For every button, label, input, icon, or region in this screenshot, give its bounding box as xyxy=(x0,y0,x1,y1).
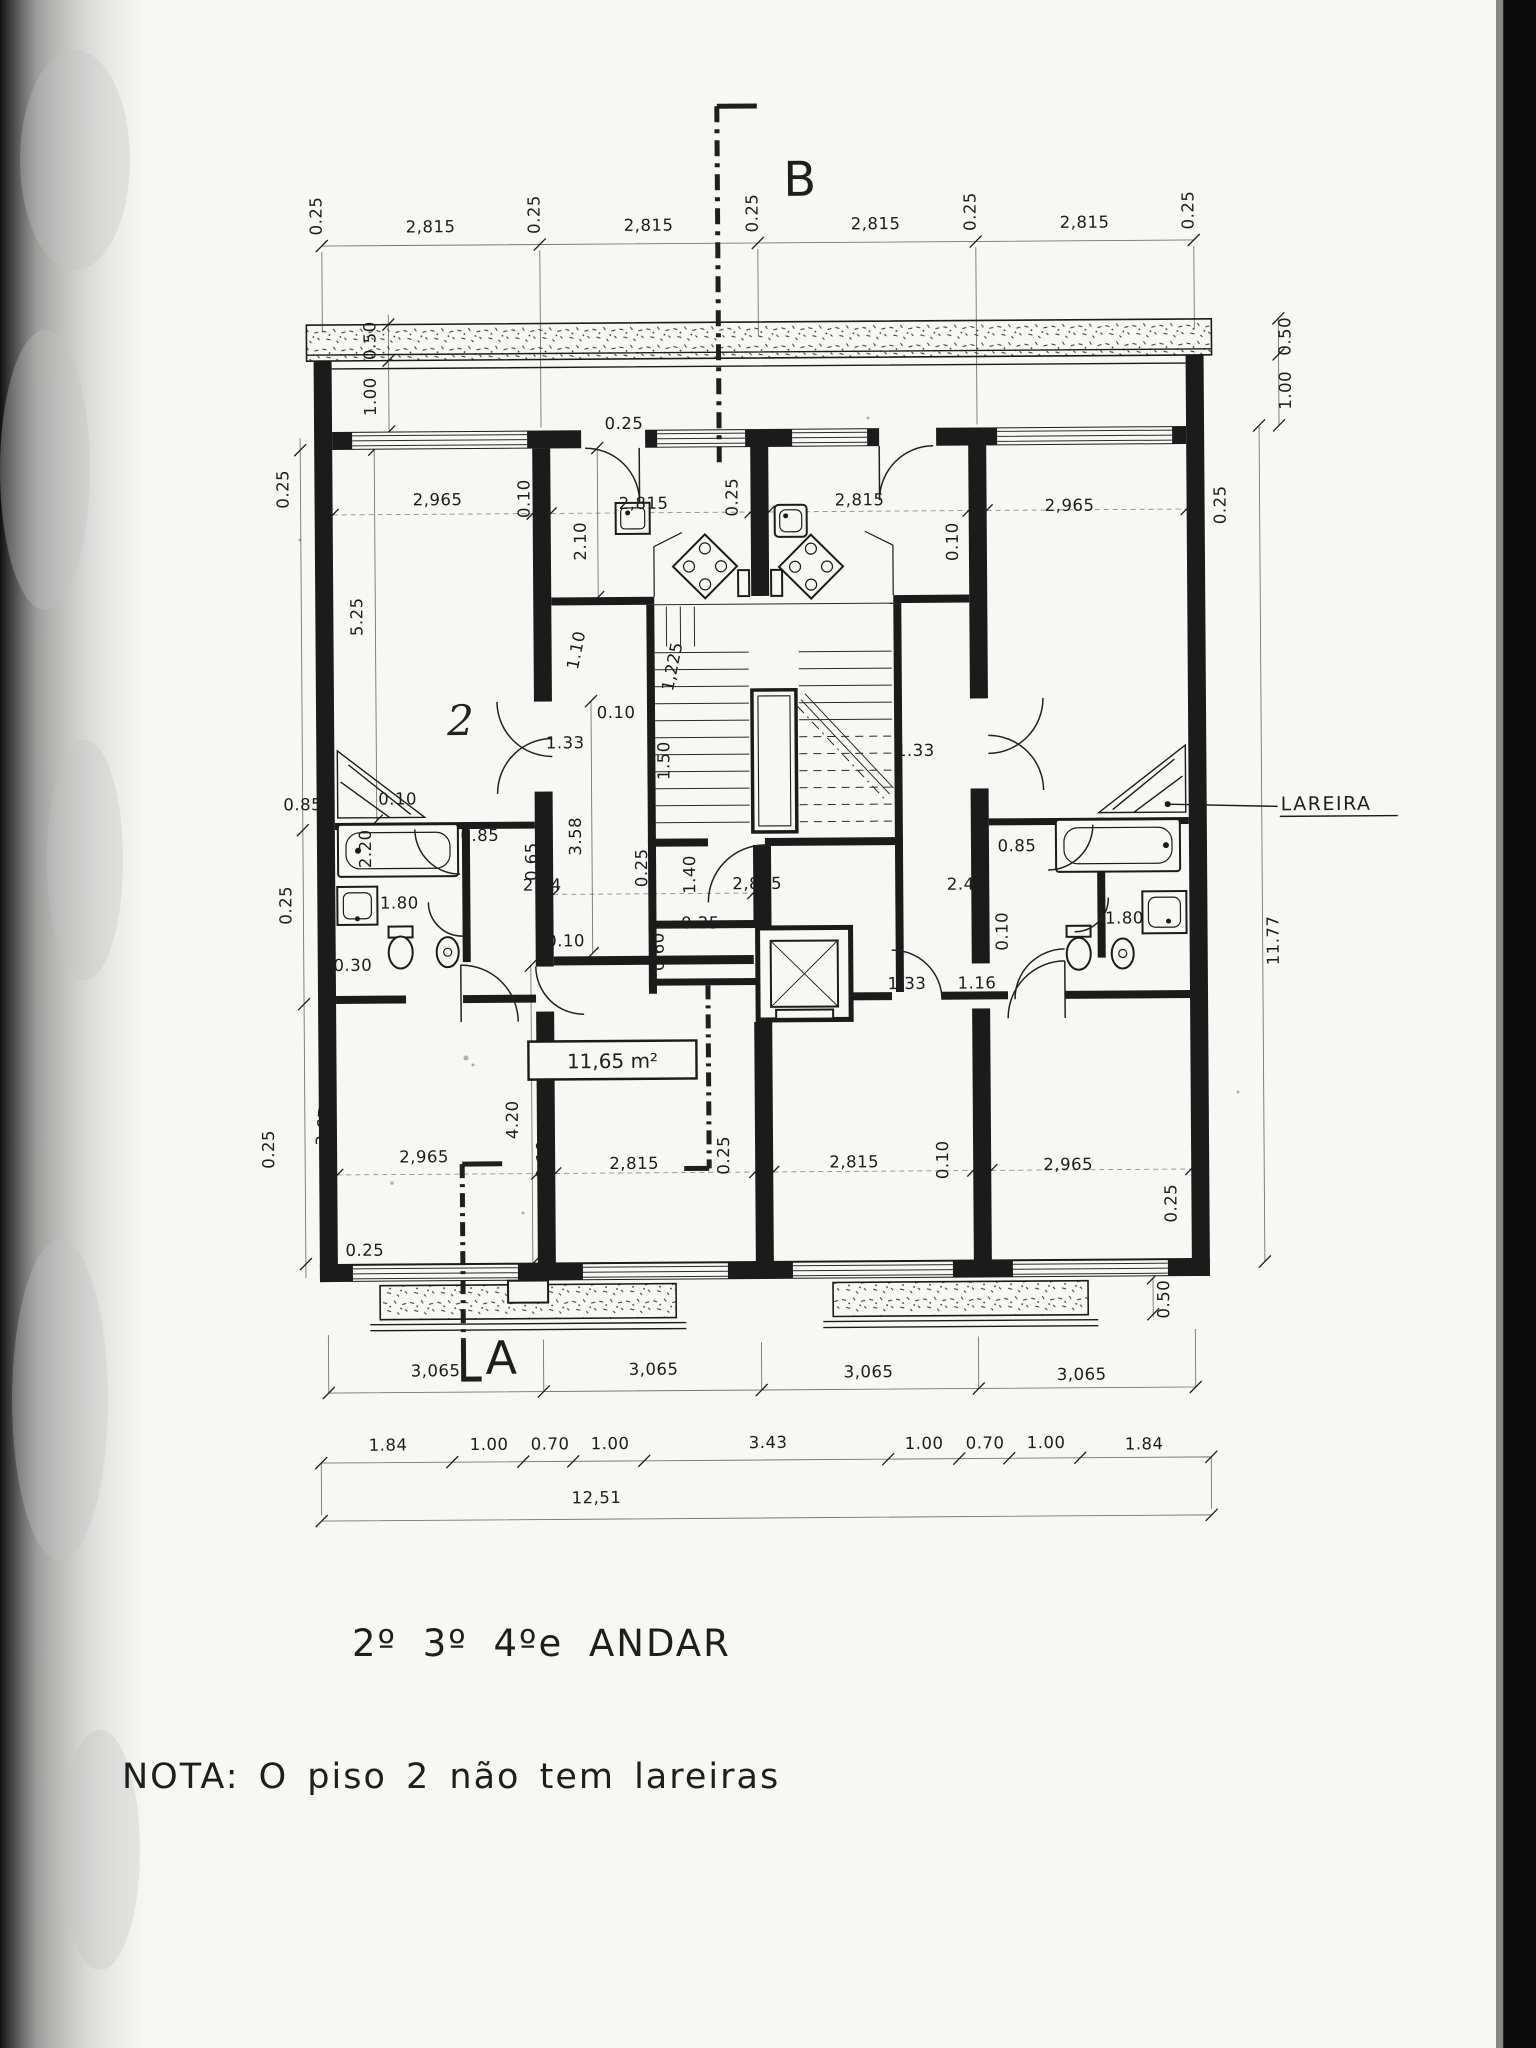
dimension-label: 0.50 xyxy=(1154,1280,1173,1319)
dimension-label: 1.00 xyxy=(1276,371,1295,410)
section-a-label: A xyxy=(485,1331,517,1385)
scanned-floorplan-page: LAREIRA xyxy=(0,0,1536,2048)
dimension-label: 0.25 xyxy=(524,195,543,234)
dimension-label: 1.80 xyxy=(380,893,419,912)
dimension-label: 2,815 xyxy=(1060,213,1110,232)
dimension-label: 1.16 xyxy=(957,973,996,992)
dimension-label: 2,815 xyxy=(829,1152,879,1171)
dimension-label: 0.50 xyxy=(360,321,379,360)
dimension-label: 0.70 xyxy=(966,1433,1005,1452)
dimension-label: 0.25 xyxy=(1210,485,1229,524)
dimension-label: 1.33 xyxy=(887,974,926,993)
scan-edge-right xyxy=(1503,0,1536,2048)
dimension-label: 5.25 xyxy=(347,597,366,636)
dimension-label: 0.60 xyxy=(649,932,668,971)
dimension-label: 2.44 xyxy=(947,874,986,893)
dimension-label: 1.00 xyxy=(361,377,380,416)
dimension-label: 2,815 xyxy=(609,1154,659,1173)
dimension-label: 3,065 xyxy=(1057,1365,1107,1384)
dimension-label: 2,815 xyxy=(619,494,669,513)
dimension-label: 0.25 xyxy=(742,194,761,233)
dimension-label: 3,065 xyxy=(629,1360,679,1379)
dimension-label: 0.25 xyxy=(681,913,720,932)
dimension-label: 0.25 xyxy=(714,1136,733,1175)
dimension-label: 3.58 xyxy=(566,817,585,856)
dimension-label: 2,815 xyxy=(835,490,885,509)
dimension-label: 0.70 xyxy=(531,1434,570,1453)
dimension-label: 1.50 xyxy=(654,741,673,780)
dimension-label: 3,065 xyxy=(844,1362,894,1381)
scan-edge-right-fade xyxy=(1496,0,1504,2048)
dimension-label: 0.25 xyxy=(345,1241,384,1260)
dimension-label: 3,065 xyxy=(411,1361,461,1380)
lareira-label: LAREIRA xyxy=(1281,793,1372,816)
dimension-label: 3.67 xyxy=(312,1107,334,1147)
dimension-label: 0.10 xyxy=(943,522,962,561)
dimension-label: 1.84 xyxy=(1125,1434,1164,1453)
dimension-label: 0.25 xyxy=(722,478,741,517)
dimension-label: 0.85 xyxy=(460,826,499,845)
dimension-label: 12,51 xyxy=(572,1488,622,1507)
dimension-label: 4.20 xyxy=(503,1100,522,1139)
dimension-label: 3.43 xyxy=(749,1433,788,1452)
dimension-label: 2,815 xyxy=(732,874,782,893)
dimension-label: 0.10 xyxy=(546,931,585,950)
dimension-label: 0.10 xyxy=(933,1140,952,1179)
dimension-label: 2.44 xyxy=(523,875,562,894)
section-b-label: B xyxy=(783,152,816,208)
dimension-label: 0.85 xyxy=(283,795,322,814)
dimension-label: 0.10 xyxy=(378,789,417,808)
dimension-label: 0.25 xyxy=(306,197,325,236)
dimension-label: 0.10 xyxy=(597,703,636,722)
dimension-label: 2,815 xyxy=(851,214,901,233)
dimension-label: 1.80 xyxy=(1105,908,1144,927)
dimension-label: 1.33 xyxy=(546,733,585,752)
dimension-label: 2,965 xyxy=(1043,1155,1093,1174)
dimension-label: 0.10 xyxy=(992,912,1011,951)
dimension-label: 1.00 xyxy=(905,1434,944,1453)
dimension-label: 0.30 xyxy=(333,956,372,975)
dimension-label: 2.10 xyxy=(571,522,590,561)
dimension-label: 1.00 xyxy=(1027,1433,1066,1452)
dimension-label: 2,965 xyxy=(413,490,463,509)
dimension-label: 0.25 xyxy=(960,192,979,231)
dimension-label: 1.00 xyxy=(470,1435,509,1454)
dimension-label: 0.10 xyxy=(533,1140,552,1179)
dimension-label: 2.20 xyxy=(356,829,375,868)
drawing-title: 2º 3º 4ºe ANDAR xyxy=(352,1622,731,1665)
dimension-label: 0.25 xyxy=(259,1130,278,1169)
dimension-label: 2,815 xyxy=(624,216,674,235)
dimension-label: 0.25 xyxy=(632,848,651,887)
dimension-label: 1.33 xyxy=(896,741,935,760)
dimension-label: 1.40 xyxy=(680,855,699,894)
dimension-label: 0.10 xyxy=(514,479,533,518)
dimension-label: 11.77 xyxy=(1263,915,1282,965)
dimension-label: 2,965 xyxy=(1045,496,1095,515)
drawing-note: NOTA: O piso 2 não tem lareiras xyxy=(122,1757,780,1797)
dimension-label: 2,815 xyxy=(406,217,456,236)
dimension-label: 0.85 xyxy=(998,836,1037,855)
area-label: 11,65 m² xyxy=(567,1049,658,1074)
dimension-label: 1.00 xyxy=(591,1434,630,1453)
handwritten-mark: 2 xyxy=(446,696,474,745)
floorplan-drawing: LAREIRA xyxy=(0,0,1536,2048)
dimension-label: 0.25 xyxy=(605,414,644,433)
area-annotation: 11,65 m² xyxy=(528,1040,696,1079)
scan-shadow-left xyxy=(0,0,150,2048)
dimension-label: 0.25 xyxy=(273,470,292,509)
dimension-label: 0.50 xyxy=(1275,317,1294,356)
dimension-label: 0.25 xyxy=(1161,1184,1180,1223)
dimension-label: 2,965 xyxy=(399,1147,449,1166)
dimension-label: 1.84 xyxy=(369,1435,408,1454)
elevator xyxy=(758,927,852,1020)
dimension-label: 0.25 xyxy=(276,886,295,925)
dimension-label: 0.25 xyxy=(1178,191,1197,230)
